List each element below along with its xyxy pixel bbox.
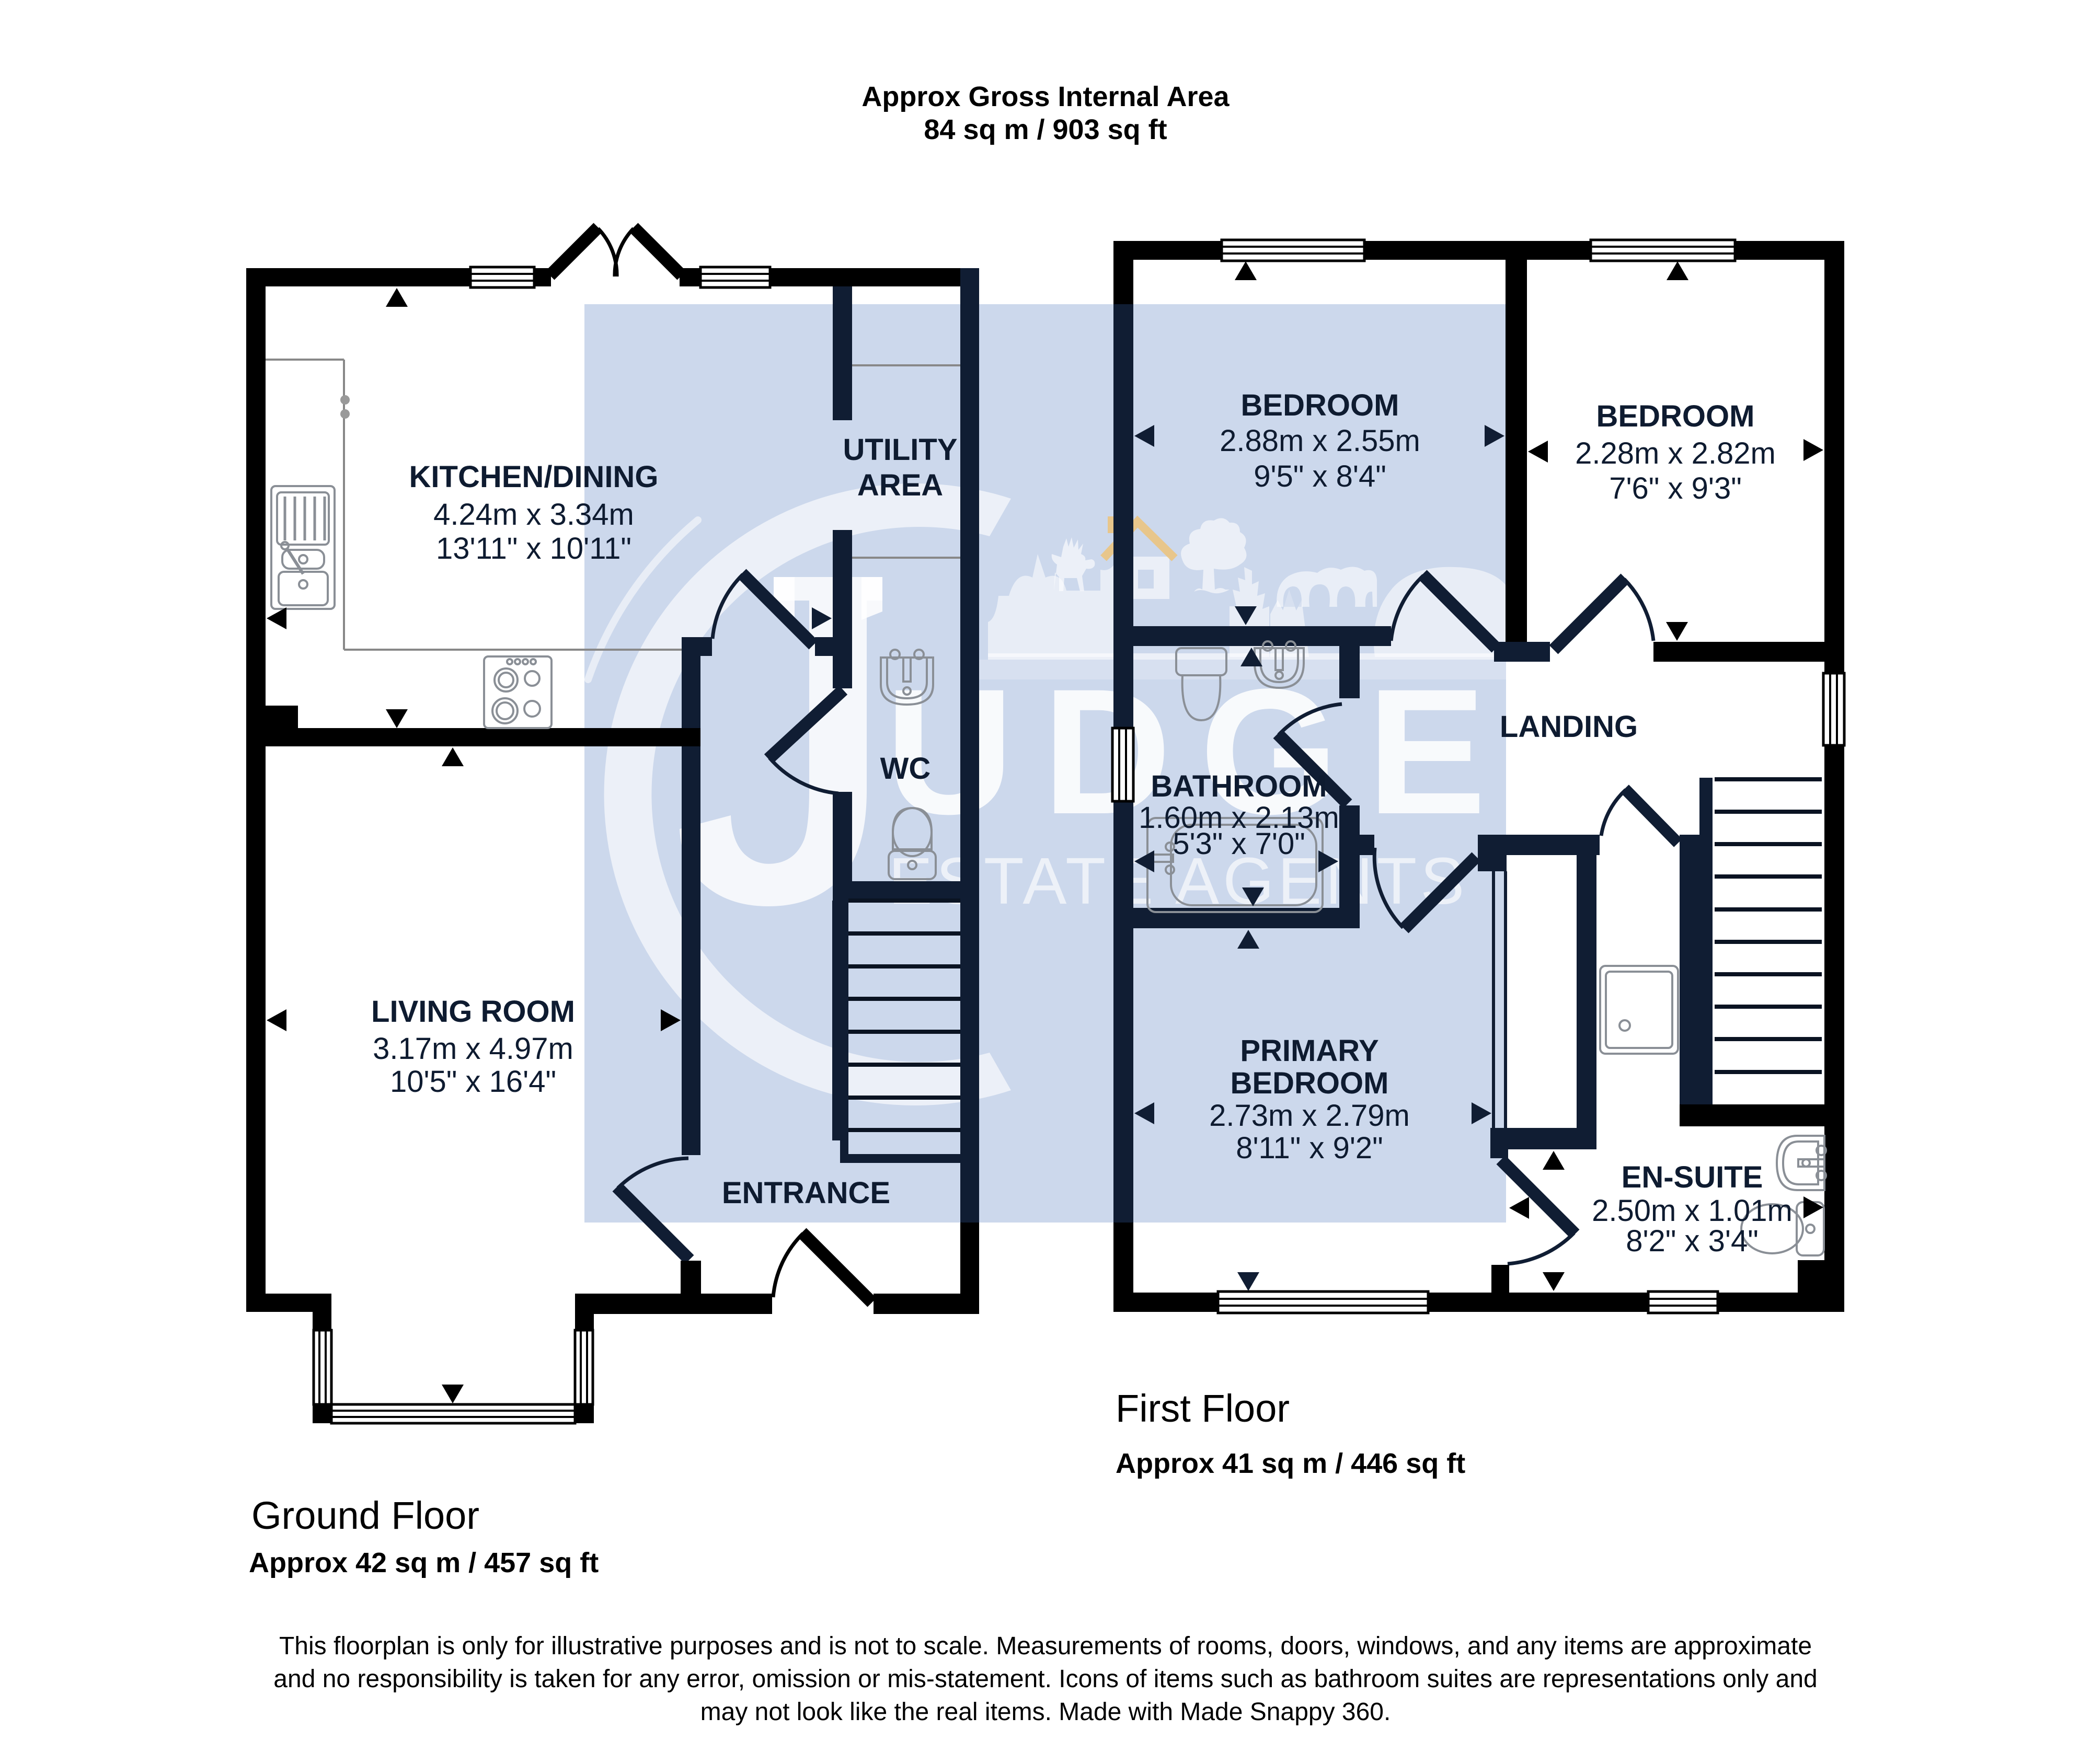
svg-text:5'3" x 7'0": 5'3" x 7'0" [1173, 827, 1305, 861]
svg-text:13'11" x 10'11": 13'11" x 10'11" [436, 532, 631, 566]
svg-text:BEDROOM: BEDROOM [1241, 388, 1399, 422]
svg-text:ENTRANCE: ENTRANCE [722, 1176, 890, 1210]
svg-text:may not look like the real ite: may not look like the real items. Made w… [700, 1698, 1391, 1726]
svg-text:4.24m x 3.34m: 4.24m x 3.34m [433, 498, 634, 532]
svg-text:Approx 41 sq m / 446 sq ft: Approx 41 sq m / 446 sq ft [1116, 1448, 1465, 1479]
svg-text:Approx Gross Internal Area: Approx Gross Internal Area [861, 81, 1230, 112]
svg-text:WC: WC [880, 752, 931, 786]
svg-text:LANDING: LANDING [1500, 710, 1638, 744]
svg-text:8'2" x 3'4": 8'2" x 3'4" [1626, 1224, 1759, 1258]
svg-text:9'5" x 8'4": 9'5" x 8'4" [1254, 459, 1386, 493]
svg-text:2.88m x 2.55m: 2.88m x 2.55m [1220, 424, 1420, 458]
svg-text:2.73m x 2.79m: 2.73m x 2.79m [1209, 1099, 1410, 1133]
svg-text:PRIMARY: PRIMARY [1240, 1034, 1378, 1068]
svg-text:84 sq m / 903 sq ft: 84 sq m / 903 sq ft [924, 114, 1167, 145]
svg-text:UTILITY: UTILITY [843, 433, 957, 467]
svg-text:3.17m x 4.97m: 3.17m x 4.97m [373, 1032, 573, 1066]
svg-text:BEDROOM: BEDROOM [1231, 1066, 1389, 1100]
svg-text:AREA: AREA [857, 468, 943, 502]
svg-text:8'11" x 9'2": 8'11" x 9'2" [1236, 1131, 1383, 1165]
svg-text:LIVING ROOM: LIVING ROOM [371, 995, 575, 1029]
svg-text:KITCHEN/DINING: KITCHEN/DINING [409, 460, 659, 494]
svg-text:7'6" x 9'3": 7'6" x 9'3" [1609, 471, 1742, 505]
svg-text:Ground Floor: Ground Floor [251, 1494, 479, 1537]
svg-text:2.28m x 2.82m: 2.28m x 2.82m [1575, 436, 1776, 470]
svg-text:BATHROOM: BATHROOM [1151, 769, 1327, 803]
svg-text:and no responsibility is taken: and no responsibility is taken for any e… [273, 1665, 1817, 1693]
svg-text:2.50m x 1.01m: 2.50m x 1.01m [1592, 1194, 1793, 1228]
svg-text:This floorplan is only for ill: This floorplan is only for illustrative … [279, 1632, 1812, 1660]
svg-text:Approx 42 sq m / 457 sq ft: Approx 42 sq m / 457 sq ft [249, 1547, 599, 1578]
svg-text:BEDROOM: BEDROOM [1596, 399, 1755, 433]
svg-text:First Floor: First Floor [1116, 1387, 1290, 1430]
svg-text:EN-SUITE: EN-SUITE [1622, 1160, 1763, 1194]
svg-text:10'5" x 16'4": 10'5" x 16'4" [390, 1065, 556, 1099]
